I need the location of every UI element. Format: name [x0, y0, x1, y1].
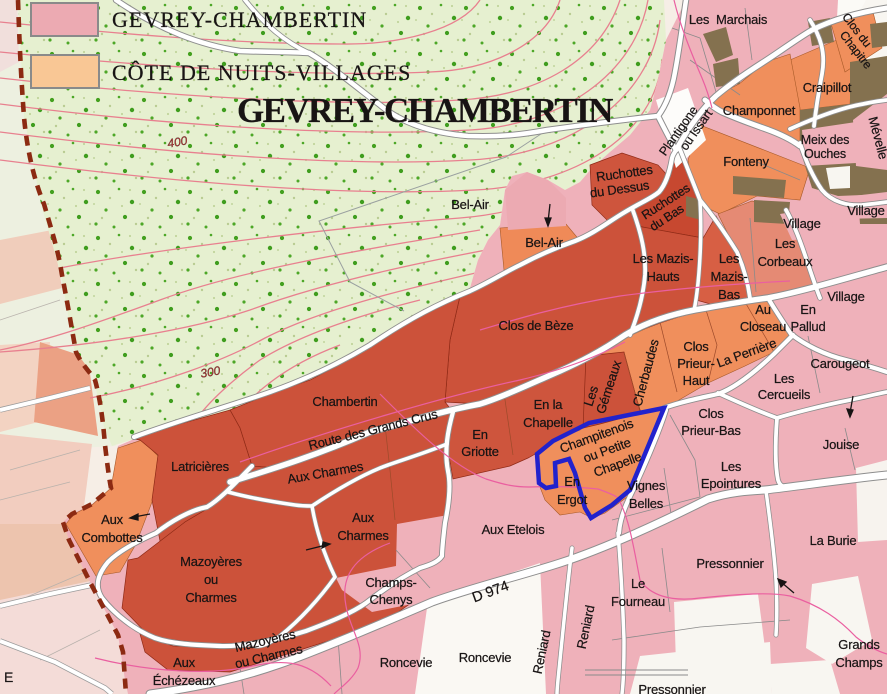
svg-text:Craipillot: Craipillot — [803, 80, 852, 95]
svg-text:Latricières: Latricières — [171, 459, 229, 474]
svg-text:Chambertin: Chambertin — [312, 394, 377, 409]
svg-text:La Burie: La Burie — [810, 533, 857, 548]
svg-text:Roncevie: Roncevie — [459, 650, 512, 665]
svg-text:Clos de Bèze: Clos de Bèze — [499, 318, 574, 333]
svg-text:Village: Village — [783, 216, 820, 231]
svg-text:GEVREY-CHAMBERTIN: GEVREY-CHAMBERTIN — [237, 91, 613, 130]
svg-text:Village: Village — [847, 203, 884, 218]
svg-text:Pressonnier: Pressonnier — [696, 556, 764, 571]
svg-text:Pressonnier: Pressonnier — [638, 682, 706, 694]
svg-text:Aux Etelois: Aux Etelois — [482, 522, 546, 537]
svg-text:Carougeot: Carougeot — [811, 356, 870, 371]
svg-text:Fonteny: Fonteny — [723, 154, 769, 169]
svg-text:E: E — [4, 669, 13, 685]
svg-text:Bel-Air: Bel-Air — [525, 235, 563, 250]
svg-text:Roncevie: Roncevie — [380, 655, 433, 670]
svg-text:Les Marchais: Les Marchais — [689, 12, 768, 27]
svg-text:Champonnet: Champonnet — [723, 103, 796, 118]
svg-text:CÔTE DE NUITS-VILLAGES: CÔTE DE NUITS-VILLAGES — [112, 60, 411, 85]
svg-text:Village: Village — [827, 289, 864, 304]
svg-text:Meix desOuches: Meix desOuches — [801, 133, 849, 161]
svg-text:GEVREY-CHAMBERTIN: GEVREY-CHAMBERTIN — [112, 7, 367, 32]
svg-text:Bel-Air: Bel-Air — [451, 197, 489, 212]
svg-text:Jouise: Jouise — [823, 437, 859, 452]
